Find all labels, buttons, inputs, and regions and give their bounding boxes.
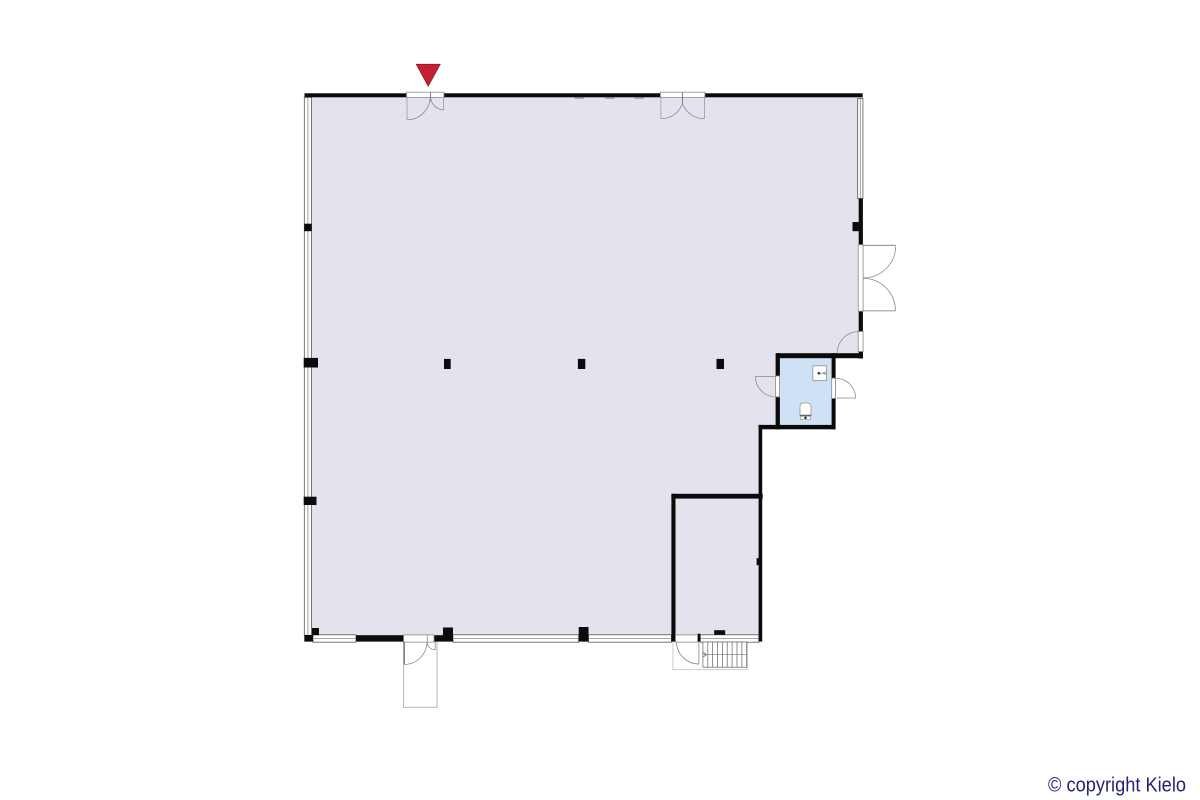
svg-text:© copyright Kielo: © copyright Kielo (1048, 774, 1186, 797)
